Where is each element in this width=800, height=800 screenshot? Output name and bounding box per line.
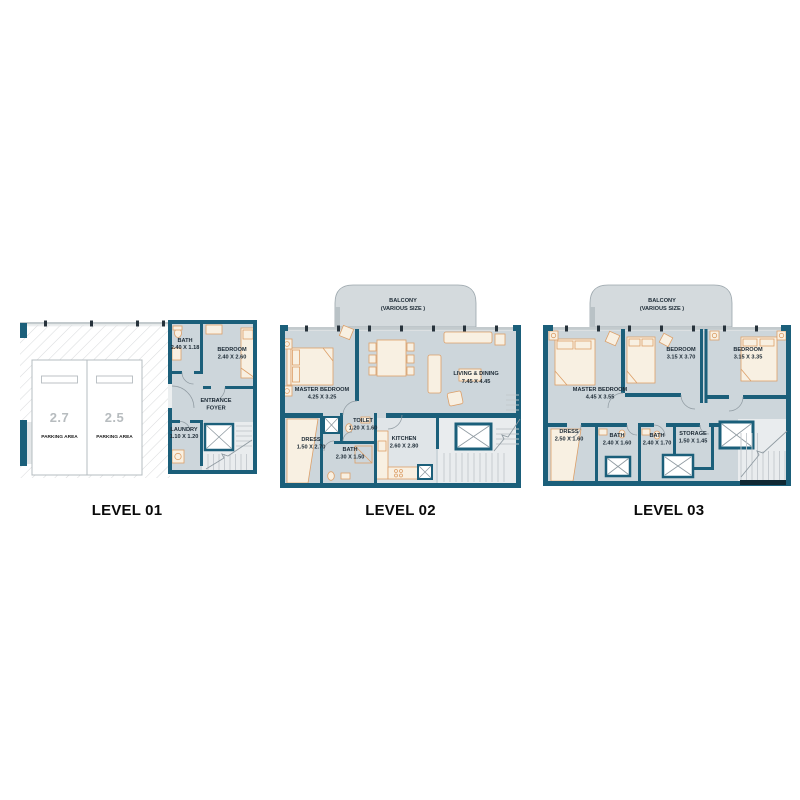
room-dims-dress: 2.50 X 1.60	[555, 437, 584, 443]
parking-area-label: PARKING AREA	[96, 434, 133, 440]
room-dims-master-bedroom: 4.25 X 3.25	[308, 395, 337, 401]
balcony: BALCONY (VARIOUS SIZE )	[335, 285, 476, 327]
room-label-balcony: BALCONY	[389, 298, 417, 304]
dining-set	[369, 340, 414, 376]
room-dims-laundry: 1.10 X 1.20	[170, 434, 199, 440]
room-label-kitchen: KITCHEN	[392, 436, 417, 442]
room-dims-balcony: (VARIOUS SIZE )	[381, 306, 425, 312]
window-band	[20, 322, 170, 324]
room-dims-master-bedroom: 4.45 X 3.55	[586, 395, 615, 401]
room-label-entrance-foyer-2: FOYER	[206, 406, 225, 412]
room-label-bath: BATH	[342, 447, 357, 453]
elevator	[205, 424, 233, 450]
bed	[241, 328, 255, 378]
room-label-bedroom: BEDROOM	[217, 347, 247, 353]
washing-machine	[172, 450, 184, 463]
floor-plan-level-03: BALCONY (VARIOUS SIZE )	[543, 283, 795, 495]
parking-stall-1: 2.7 PARKING AREA	[32, 360, 87, 475]
duct-shaft	[418, 465, 432, 479]
room-dims-bath: 2.30 X 1.50	[336, 455, 365, 461]
room-dims-toilet: 1.20 X 1.60	[349, 426, 378, 432]
room-label-entrance-foyer: ENTRANCE	[200, 398, 231, 404]
room-label-bath: BATH	[177, 338, 192, 344]
window-band	[283, 326, 517, 332]
floor-plan-level-02: BALCONY (VARIOUS SIZE )	[278, 283, 523, 493]
dresser	[206, 325, 222, 334]
elevator	[720, 422, 753, 448]
room-dims-bath: 2.40 X 1.18	[171, 345, 200, 351]
room-label-laundry: LAUNDRY	[170, 427, 197, 433]
room-label-storage: STORAGE	[679, 431, 707, 437]
wall-pier	[20, 323, 27, 338]
room-dims-bath-1: 2.40 X 1.60	[603, 441, 632, 447]
parking-number: 2.5	[105, 410, 125, 425]
parking-stall-2: 2.5 PARKING AREA	[87, 360, 142, 475]
wall-pier	[20, 420, 27, 466]
room-label-bath-1: BATH	[609, 433, 624, 439]
room-label-balcony: BALCONY	[648, 298, 676, 304]
parking-garage: 2.7 PARKING AREA 2.5 PARKING AREA	[20, 321, 170, 479]
room-label-master-bedroom: MASTER BEDROOM	[573, 387, 628, 393]
room-label-bedroom-2: BEDROOM	[733, 347, 763, 353]
elevator	[456, 424, 491, 449]
room-dims-dress: 1.50 X 2.70	[297, 445, 326, 451]
room-label-bath-2: BATH	[649, 433, 664, 439]
level-title-02: LEVEL 02	[278, 502, 523, 520]
core-unit: BATH 2.40 X 1.18 BEDROOM 2.40 X 2.60 ENT…	[168, 320, 257, 474]
balcony: BALCONY (VARIOUS SIZE )	[590, 285, 732, 327]
level-title-03: LEVEL 03	[543, 502, 795, 520]
room-label-toilet: TOILET	[353, 418, 373, 424]
duct-shaft	[606, 457, 630, 476]
room-label-master-bedroom: MASTER BEDROOM	[295, 387, 350, 393]
room-label-dress: DRESS	[559, 429, 579, 435]
room-dims-bedroom-1: 3.15 X 3.70	[667, 355, 696, 361]
room-dims-bedroom: 2.40 X 2.60	[218, 355, 247, 361]
parking-area-label: PARKING AREA	[41, 434, 78, 440]
room-dims-bath-2: 2.40 X 1.70	[643, 441, 672, 447]
parking-number: 2.7	[50, 410, 70, 425]
room-dims-storage: 1.50 X 1.45	[679, 439, 708, 445]
level-title-01: LEVEL 01	[47, 502, 207, 520]
room-dims-balcony: (VARIOUS SIZE )	[640, 306, 684, 312]
duct-shaft	[663, 455, 693, 477]
duct-shaft	[324, 417, 339, 433]
room-dims-kitchen: 2.60 X 2.80	[390, 444, 419, 450]
room-label-bedroom-1: BEDROOM	[666, 347, 696, 353]
room-label-dress: DRESS	[301, 437, 321, 443]
room-dims-bedroom-2: 3.15 X 3.35	[734, 355, 763, 361]
room-label-living-dining: LIVING & DINING	[453, 371, 498, 377]
room-dims-living-dining: 7.45 X 4.45	[462, 379, 491, 385]
floor-plan-level-01: 2.7 PARKING AREA 2.5 PARKING AREA	[20, 320, 260, 492]
